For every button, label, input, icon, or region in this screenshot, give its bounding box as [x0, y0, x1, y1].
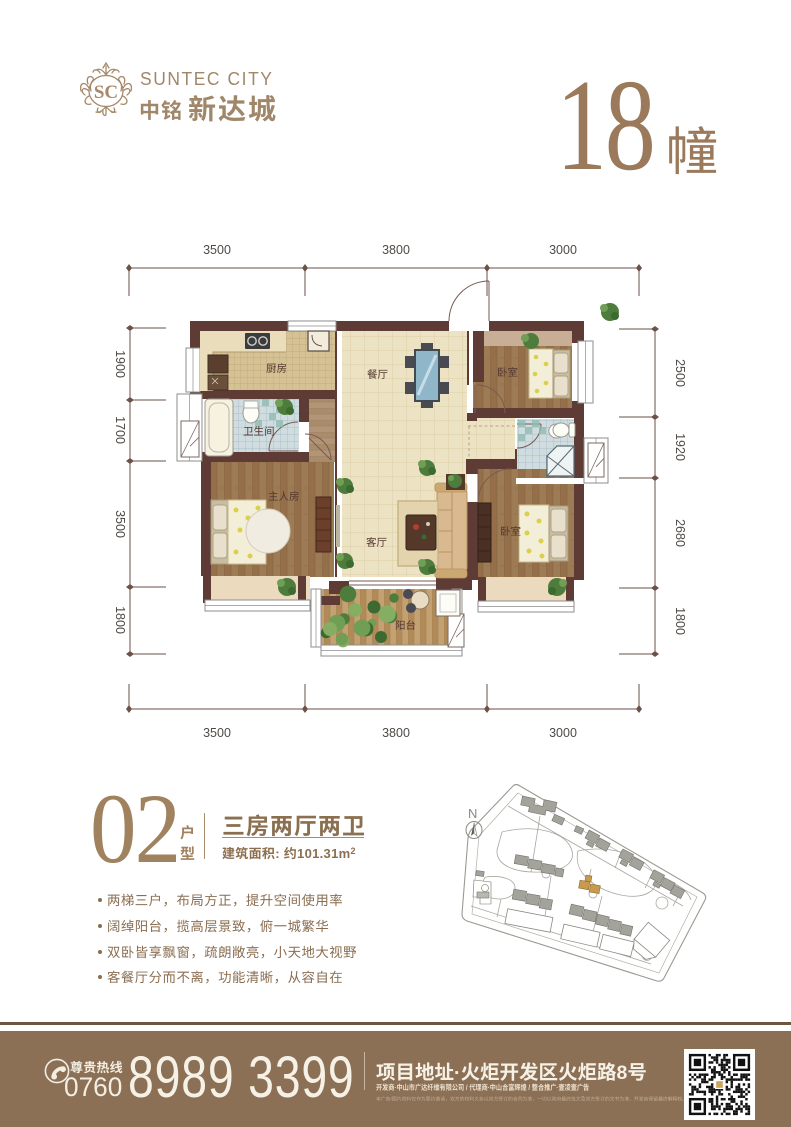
svg-text:主人房: 主人房: [268, 489, 300, 504]
svg-text:3000: 3000: [549, 243, 577, 257]
svg-text:1920: 1920: [673, 433, 687, 461]
svg-text:2680: 2680: [673, 519, 687, 547]
svg-text:1800: 1800: [113, 606, 127, 634]
svg-text:卧室: 卧室: [500, 524, 521, 539]
svg-text:2500: 2500: [673, 359, 687, 387]
svg-text:餐厅: 餐厅: [367, 367, 388, 382]
svg-text:SC: SC: [94, 82, 118, 103]
svg-text:1700: 1700: [113, 416, 127, 444]
svg-text:1800: 1800: [673, 607, 687, 635]
svg-text:3500: 3500: [113, 510, 127, 538]
svg-text:客厅: 客厅: [366, 535, 387, 550]
svg-text:3800: 3800: [382, 243, 410, 257]
svg-text:3500: 3500: [203, 243, 231, 257]
svg-text:卧室: 卧室: [497, 365, 518, 380]
svg-text:3000: 3000: [549, 726, 577, 740]
svg-text:N: N: [468, 806, 477, 821]
svg-text:厨房: 厨房: [266, 361, 287, 376]
svg-text:3800: 3800: [382, 726, 410, 740]
svg-text:1900: 1900: [113, 350, 127, 378]
svg-text:卫生间: 卫生间: [243, 424, 275, 439]
svg-text:阳台: 阳台: [395, 618, 416, 633]
svg-text:3500: 3500: [203, 726, 231, 740]
